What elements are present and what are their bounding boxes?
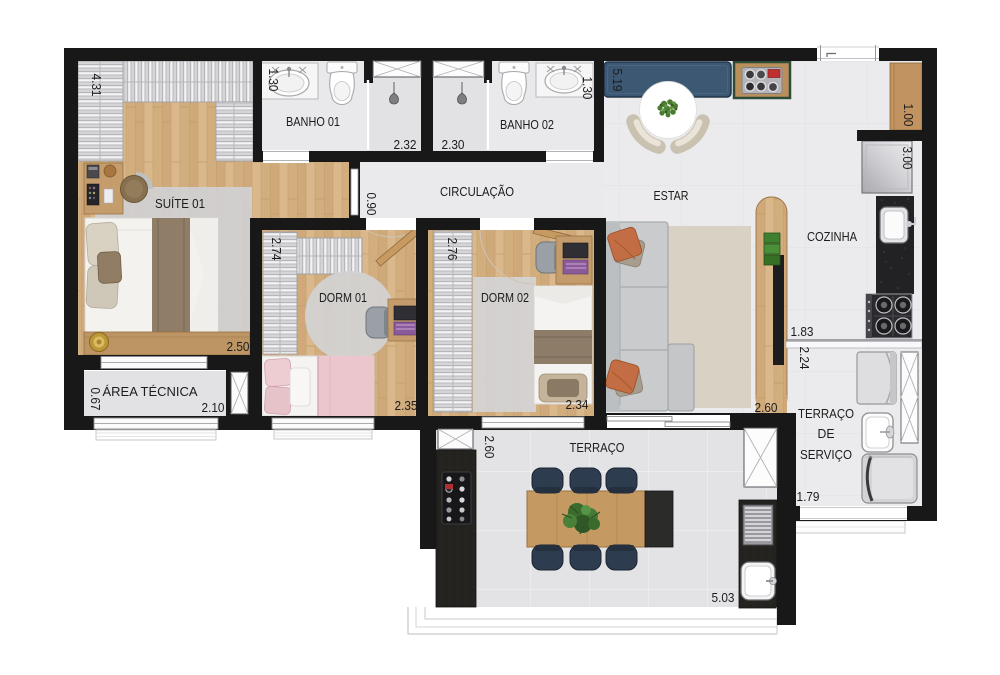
svg-text:0.90: 0.90	[364, 193, 379, 216]
svg-text:3.00: 3.00	[900, 147, 915, 170]
svg-text:DORM 01: DORM 01	[319, 290, 367, 305]
svg-text:DORM 02: DORM 02	[481, 290, 529, 305]
svg-text:TERRAÇO: TERRAÇO	[798, 406, 854, 421]
svg-text:TERRAÇO: TERRAÇO	[570, 440, 625, 455]
svg-text:CIRCULAÇÃO: CIRCULAÇÃO	[440, 184, 514, 199]
svg-text:2.76: 2.76	[445, 238, 460, 261]
svg-text:2.35: 2.35	[395, 398, 418, 413]
svg-text:2.24: 2.24	[797, 347, 812, 370]
svg-text:SERVIÇO: SERVIÇO	[800, 447, 852, 462]
svg-text:5.03: 5.03	[712, 590, 735, 605]
svg-text:4.31: 4.31	[89, 74, 104, 97]
svg-text:BANHO 01: BANHO 01	[286, 114, 340, 129]
svg-text:1.83: 1.83	[791, 324, 814, 339]
svg-text:ÁREA TÉCNICA: ÁREA TÉCNICA	[103, 384, 198, 399]
svg-text:5.19: 5.19	[610, 69, 625, 92]
svg-text:SUÍTE 01: SUÍTE 01	[155, 196, 205, 211]
svg-text:1.00: 1.00	[901, 104, 916, 127]
svg-text:2.10: 2.10	[202, 400, 225, 415]
svg-text:1.30: 1.30	[580, 77, 595, 100]
svg-text:ESTAR: ESTAR	[654, 188, 689, 203]
svg-text:COZINHA: COZINHA	[807, 229, 857, 244]
svg-text:0.67: 0.67	[88, 388, 103, 411]
svg-text:2.50: 2.50	[227, 339, 250, 354]
svg-text:1.30: 1.30	[266, 69, 281, 92]
svg-text:BANHO 02: BANHO 02	[500, 117, 554, 132]
svg-text:2.30: 2.30	[442, 137, 465, 152]
svg-text:2.32: 2.32	[394, 137, 417, 152]
svg-text:1.79: 1.79	[797, 489, 820, 504]
svg-text:2.34: 2.34	[566, 397, 589, 412]
svg-text:2.60: 2.60	[755, 400, 778, 415]
svg-text:2.60: 2.60	[482, 436, 497, 459]
svg-text:2.74: 2.74	[269, 238, 284, 261]
svg-text:DE: DE	[818, 426, 835, 441]
